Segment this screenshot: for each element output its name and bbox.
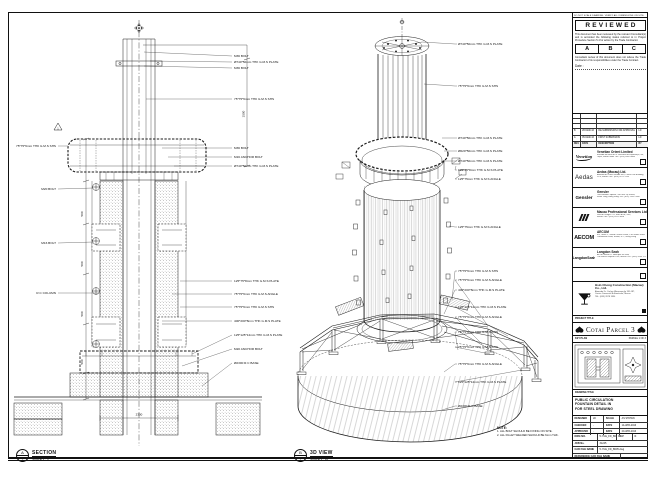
reviewed-heading: REVIEWED xyxy=(575,20,646,31)
company-address: 21/F, Macau TEL: (853) 2871 5193 xyxy=(597,176,646,179)
rev-by: LD xyxy=(637,136,648,141)
drawing-sheet: M36 BOLT Ø740*50mm THK G.M.S PLATE M36 B… xyxy=(0,0,650,488)
section-view-drawing: M36 BOLT Ø740*50mm THK G.M.S PLATE M36 B… xyxy=(10,14,292,458)
leader-label: Ø740*50mm THK G.M.S PLATE xyxy=(234,60,278,64)
leader-label: M20 BOLT xyxy=(41,187,56,191)
leader-label: M16 ANCHOR BOLT xyxy=(234,155,263,159)
leader-label: 75*75*6mm THK G.M.S SHS xyxy=(458,269,498,273)
leader-label: 75*75*6mm THK G.M.S SHS xyxy=(16,144,56,148)
venetian-logo: Venetian xyxy=(576,154,593,161)
leader-label: 400*200*8mm THK G.M.S PLATE xyxy=(234,319,281,323)
iso-title-badge: B - 3D VIEW SCALE 1 : 10 xyxy=(294,448,333,463)
company-checkbox xyxy=(640,273,646,279)
section-view-scale: SCALE 1 : 5 xyxy=(32,457,56,461)
company-checkbox xyxy=(640,199,646,205)
dwg-no-label: DWG NO. xyxy=(573,434,598,440)
contractor-name: Hsin Chong Construction (Macau) Co., Ltd… xyxy=(595,284,646,291)
leader-label: 125*75mm THK G.M.S ANGLE xyxy=(458,177,501,181)
rev-header: DATE xyxy=(581,142,597,147)
section-labels-right: M36 BOLT Ø740*50mm THK G.M.S PLATE M36 B… xyxy=(234,54,282,365)
iso-labels: Ø740*50mm THK G.M.S PLATE 75*75*6mm THK … xyxy=(458,42,506,408)
dim-text: 1500 xyxy=(242,110,246,117)
fields-grid: DESIGNED LD SCALE AS SHOWN CHECKED - DAT… xyxy=(573,416,648,434)
section-labels-left: 75*75*6mm THK G.M.S SHS M20 BOLT M16 BOL… xyxy=(16,144,56,295)
ornament-icon xyxy=(575,326,584,334)
company-address: Taipa, Macau SAR TEL: (853) 2882 8888 xyxy=(597,156,646,159)
contractor-block: Hsin Chong Construction (Macau) Co., Ltd… xyxy=(573,282,648,316)
field-label: DATE xyxy=(604,423,620,429)
drawing-title-label: DRAWING TITLE xyxy=(575,390,594,396)
leader-label: 75*75*6mm THK G.M.S ANGLE xyxy=(458,362,502,366)
revision-table: B 28-MAR-16 RE-SUBMISSION FOR APPROVAL L… xyxy=(573,114,648,148)
leader-label: M20 ANCHOR BOLT xyxy=(234,347,263,351)
section-marker-bubble: A - xyxy=(16,449,29,462)
section-title-badge: A - SECTION SCALE 1 : 5 xyxy=(16,448,56,463)
company-checkbox xyxy=(640,159,646,165)
company-name: Macau Professional Services Ltd. xyxy=(597,210,646,214)
review-status-c: C xyxy=(623,45,645,53)
leader-label: 75*75*6mm THK G.M.S ANGLE xyxy=(234,292,278,296)
leader-label: Ø740*50mm THK G.M.S PLATE xyxy=(458,42,502,46)
leader-label: M36 BOLT xyxy=(234,146,249,150)
note-line: 2. ALL FILLET WELDED SHOULD BE 6mm THK. xyxy=(497,434,571,437)
rev-date: 28-MAR-16 xyxy=(581,129,597,134)
dwg-no-value: 5-YUE_FD_B005 xyxy=(598,434,616,440)
ornament-icon xyxy=(637,326,646,334)
company-row-venetian: Venetian Venetian Orient Limited Estrada… xyxy=(573,148,648,168)
drawing-title-line: FOR STEEL DRAWING xyxy=(575,407,646,411)
section-view-title: SECTION xyxy=(32,450,56,457)
contractor-logo xyxy=(573,282,595,315)
leader-label: Ø740*50mm THK G.M.S PLATE xyxy=(458,136,502,140)
field-label: DESIGNED xyxy=(573,416,591,422)
rev-date: 05-MAR-16 xyxy=(581,136,597,141)
key-plan-note: PARCEL 1 OF 3 xyxy=(629,336,646,342)
field-value: - xyxy=(591,423,604,429)
section-leaders-left xyxy=(58,146,100,293)
cad-file-label: CAD FILE NAME xyxy=(573,447,598,453)
leader-label: R.C COLUMN xyxy=(36,291,56,295)
revision-header-row: REV. DATE DESCRIPTION BY xyxy=(573,142,648,147)
leader-label: 125*75mm THK G.M.S ANGLE xyxy=(458,225,501,229)
company-address: The Macau Square 19/F, Macau TEL: (853) … xyxy=(597,256,646,259)
company-checkbox xyxy=(640,179,646,185)
rev-label: REV xyxy=(616,434,632,440)
leader-label: 125*75*8mm THK G.M.S PLATE xyxy=(234,279,279,283)
leader-label: M36 BOLT xyxy=(234,54,249,58)
rev-by: LD xyxy=(637,129,648,134)
company-address: Macau TEL: (853) 2875 3088 xyxy=(597,216,646,219)
company-address: Committee Road, Shatin, N.T., Hong Kong xyxy=(597,236,646,239)
section-dimensions: 500 500 500 500 1500 2300 1 xyxy=(57,110,245,416)
leader-label: M36 BOLT xyxy=(234,66,249,70)
gensler-logo: Gensler xyxy=(575,195,592,200)
rev-header: BY xyxy=(637,142,648,147)
iso-marker-sheet: - xyxy=(295,456,306,461)
aedas-logo: Aedas xyxy=(575,175,593,181)
project-title-label: PROJECT TITLE xyxy=(575,316,594,322)
company-address: Kwun Tong, Hong Kong TEL: (852) 2598 786… xyxy=(597,196,646,199)
rev-value: C xyxy=(632,434,648,440)
reviewed-date-label: Date : xyxy=(575,64,646,70)
key-plan-map xyxy=(573,343,647,389)
iso-marker-bubble: B - xyxy=(294,449,307,462)
leader-label: Ø2300 R.C BASE xyxy=(234,361,259,365)
leader-label: 125*125*12mm THK G.M.S PLATE xyxy=(458,305,506,309)
cad-file-value: 5-YUE_FD_B005.dwg xyxy=(598,447,648,453)
company-checkbox xyxy=(640,219,646,225)
leader-label: 400*200*8mm THK G.M.S PLATE xyxy=(458,288,505,292)
ref-cad-file-value xyxy=(621,454,649,460)
reviewed-paragraph-1: This document has been reviewed by the r… xyxy=(575,33,646,42)
leader-label: 75*75*6mm THK G.M.S SHS xyxy=(458,330,498,334)
key-plan-label: KEY PLAN xyxy=(575,336,587,342)
drawing-title-block: DRAWING TITLE PUBLIC CIRCULATION FOUNTAI… xyxy=(573,390,648,416)
leader-label: 75*75*6mm THK G.M.S SHS xyxy=(234,97,274,101)
dim-text: 500 xyxy=(80,261,84,266)
rev-id: A xyxy=(573,136,581,141)
job-no-label: JOB No. xyxy=(573,441,598,447)
rev-id: B xyxy=(573,129,581,134)
iso-view-title: 3D VIEW xyxy=(310,450,333,457)
rev-header: REV. xyxy=(573,142,581,147)
field-value: LD xyxy=(591,416,604,422)
contractor-stamp-square xyxy=(642,309,647,314)
leader-label: 75*75*6mm THK G.M.S SHS xyxy=(458,345,498,349)
review-status-a: A xyxy=(576,45,599,53)
field-value: AS SHOWN xyxy=(620,416,648,422)
company-row-aedas: Aedas Aedas (Macau) Ltd. Avenida da Prai… xyxy=(573,168,648,188)
langdonseah-logo: LangdonSeah xyxy=(573,256,595,260)
leader-label: 75*75*6mm THK G.M.S SHS xyxy=(458,84,498,88)
company-row-gensler: Gensler Gensler Two Harbour Square, 180 … xyxy=(573,188,648,208)
dim-text: 2300 xyxy=(136,413,143,417)
leader-label: Ø740*50mm THK G.M.S PLATE xyxy=(458,159,502,163)
leader-label: 125*125*12mm THK G.M.S PLATE xyxy=(234,333,282,337)
project-name: Cotai Parcel 3 xyxy=(586,326,635,334)
drawing-number-block: DWG NO. 5-YUE_FD_B005 REV C JOB No. 3124… xyxy=(573,434,648,459)
job-no-value: 31245 xyxy=(598,441,648,447)
rev-header: DESCRIPTION xyxy=(597,142,637,147)
project-title-block: PROJECT TITLE Cotai Parcel 3 xyxy=(573,316,648,336)
isometric-view-drawing: Ø740*50mm THK G.M.S PLATE 75*75*6mm THK … xyxy=(292,14,570,458)
field-value: 14-APR-2016 xyxy=(620,423,648,429)
reviewed-stamp: REVIEWED This document has been reviewed… xyxy=(573,18,648,114)
general-notes: NOTE: 1. ALL BOLT SHOULD BE FIXING ON SI… xyxy=(497,427,571,437)
company-row-langdonseah: LangdonSeah Langdon Seah Av. do Infante … xyxy=(573,248,648,268)
contractor-phone: TEL: (853) 2878 1830 xyxy=(595,296,646,299)
key-plan-block: KEY PLAN PARCEL 1 OF 3 xyxy=(573,336,648,390)
title-block: DO NOT SCALE DRAWING. VERIFY ALL DIMENSI… xyxy=(572,12,648,458)
reviewed-paragraph-2: Consultant review of this document does … xyxy=(575,56,646,62)
company-row-aecom: AECOM AECOM 8/F, Tower 2, Grand Central … xyxy=(573,228,648,248)
field-label: CHECKED xyxy=(573,423,591,429)
review-status-b: B xyxy=(599,45,622,53)
company-checkbox xyxy=(640,239,646,245)
leader-label: Ø2300 R.C BASE xyxy=(458,404,483,408)
revision-triangle-number: 1 xyxy=(57,126,59,130)
dim-text: 500 xyxy=(80,211,84,216)
company-checkbox xyxy=(640,259,646,265)
leader-label: 125*75*8mm THK G.M.S PLATE xyxy=(458,168,503,172)
leader-label: Ø620*50mm THK G.M.S PLATE xyxy=(458,149,502,153)
section-marker-sheet: - xyxy=(17,456,28,461)
company-row-empty xyxy=(573,268,648,282)
leader-label: Ø740*50mm THK G.M.S PLATE xyxy=(234,164,278,168)
leader-label: 125*125*12mm THK G.M.S PLATE xyxy=(458,380,506,384)
iso-geometry xyxy=(297,18,541,442)
rev-desc: RE-SUBMISSION FOR APPROVAL xyxy=(597,129,637,134)
leader-label: 75*75*6mm THK G.M.S ANGLE xyxy=(458,278,502,282)
dim-text: 500 xyxy=(80,359,84,364)
field-label: SCALE xyxy=(604,416,620,422)
dim-text: 500 xyxy=(80,311,84,316)
section-geometry xyxy=(14,20,262,446)
rev-desc: FIRST SUBMISSION xyxy=(597,136,637,141)
leader-label: M16 BOLT xyxy=(41,241,56,245)
leader-label: 75*75*6mm THK G.M.S ANGLE xyxy=(458,315,502,319)
ref-cad-file-label: REFERENCE CAD FILE NAME xyxy=(573,454,621,460)
mps-logo xyxy=(580,214,588,221)
leader-label: 75*75*6mm THK G.M.S SHS xyxy=(234,305,274,309)
review-status-row: A B C xyxy=(575,44,646,54)
aecom-logo: AECOM xyxy=(574,235,594,241)
iso-view-scale: SCALE 1 : 10 xyxy=(310,457,333,461)
company-row-mps: Macau Professional Services Ltd. Rua de … xyxy=(573,208,648,228)
